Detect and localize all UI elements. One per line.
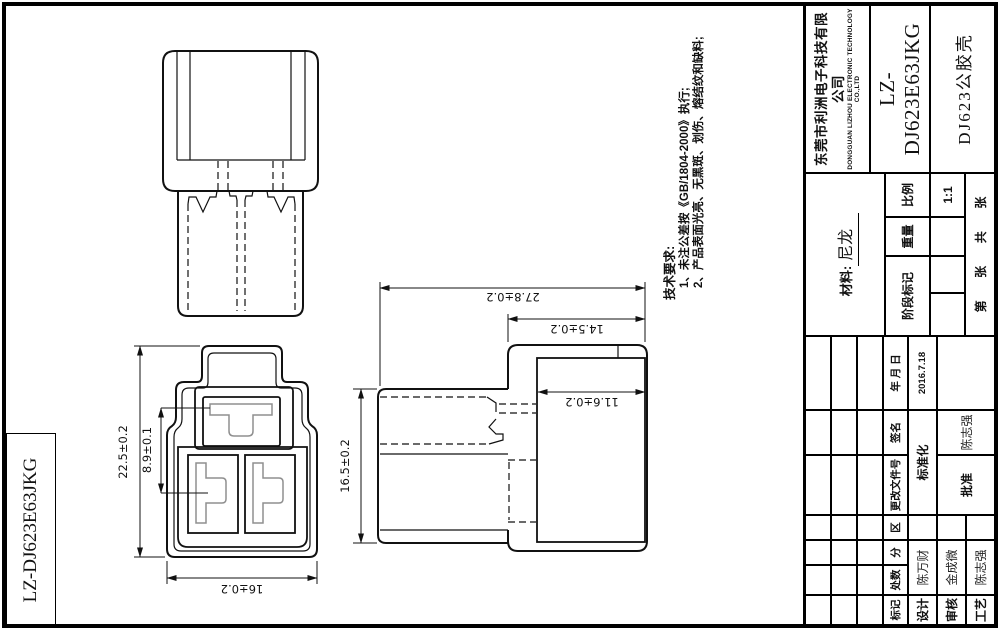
tech-requirement-item: 2、产品表面光亮、无黑斑、划伤、熔结纹和缺料; [692, 38, 706, 288]
part-code-box: LZ-DJ623E63JKG [6, 433, 56, 627]
part-name-cell: DJ623公胶壳 [930, 5, 995, 173]
design-date: 2016.7.18 [908, 336, 937, 410]
rev-header-zone: 区 [883, 515, 908, 540]
part-code-text: LZ-DJ623E63JKG [6, 433, 56, 627]
process-label: 工艺 [966, 595, 995, 625]
dim-head-length-text: 14.5±0.2 [550, 322, 604, 336]
tech-requirement-item: 1、未注公差按《GB/1804-2000》执行; [678, 38, 692, 288]
dim-inner-width-text: 11.6±0.2 [565, 395, 619, 409]
drawing-sheet: 22.5±0.2 8.9±0.1 16±0.2 [0, 0, 1000, 630]
dim-head-length: 14.5±0.2 [508, 314, 645, 342]
side-view: 27.8±0.2 14.5±0.2 11.6±0.2 16.5±0.2 [338, 282, 647, 551]
approve-label: 批准 [937, 455, 995, 515]
standard-label: 标准化 [908, 410, 937, 515]
dim-pin-pitch-text: 8.9±0.1 [140, 427, 154, 473]
check-name: 金成微 [937, 540, 966, 595]
dim-front-width-text: 16±0.2 [221, 582, 264, 596]
design-label: 设计 [908, 595, 937, 625]
dim-side-height: 16.5±0.2 [338, 389, 377, 543]
company-name-cn: 东莞市利洲电子科技有限公司 [814, 6, 848, 172]
check-label: 审核 [937, 595, 966, 625]
design-name: 陈万财 [908, 540, 937, 595]
rev-header-sign: 签名 [883, 410, 908, 455]
rev-header-div: 分 [883, 540, 908, 565]
sheet-count-cell: 第 张 共 张 [965, 173, 995, 336]
weight-value [930, 217, 965, 256]
material-value: 尼龙 [832, 213, 859, 266]
material-label: 材料: [836, 266, 855, 296]
tech-requirements-block: 技术要求: 1、未注公差按《GB/1804-2000》执行; 2、产品表面光亮、… [663, 38, 781, 310]
process-name: 陈志强 [966, 540, 995, 595]
stage-mark-label: 阶段标记 [885, 256, 930, 336]
scale-value: 1:1 [930, 173, 965, 217]
dim-total-length-text: 27.8±0.2 [486, 290, 540, 304]
rev-header-mark: 标记 [883, 595, 908, 625]
top-view [163, 51, 318, 316]
weight-label: 重量 [885, 217, 930, 256]
company-cell: 东莞市利洲电子科技有限公司 DONGGUAN LIZHOU ELECTRONIC… [805, 5, 870, 173]
rev-header-date: 年 月 日 [883, 336, 908, 410]
company-name-en: DONGGUAN LIZHOU ELECTRONIC TECHNOLOGY CO… [847, 6, 861, 172]
rev-header-count: 处数 [883, 565, 908, 595]
approve-name: 陈志强 [937, 410, 995, 455]
rev-header-docno: 更改文件号 [883, 455, 908, 515]
scale-label: 比例 [885, 173, 930, 217]
dim-front-height-text: 22.5±0.2 [116, 425, 130, 479]
dim-inner-width: 11.6±0.2 [538, 392, 645, 409]
material-cell: 材料: 尼龙 [805, 173, 885, 336]
dim-total-length: 27.8±0.2 [380, 282, 645, 386]
front-view: 22.5±0.2 8.9±0.1 16±0.2 [116, 346, 317, 596]
dim-front-width: 16±0.2 [167, 561, 317, 596]
title-block: 标记 处数 分 区 更改文件号 签名 年 月 日 设计 陈万财 标准化 2016… [805, 5, 995, 625]
tech-requirements-title: 技术要求: [663, 38, 677, 300]
dim-side-height-text: 16.5±0.2 [338, 439, 352, 493]
part-code-cell: LZ-DJ623E63JKG [870, 5, 930, 173]
